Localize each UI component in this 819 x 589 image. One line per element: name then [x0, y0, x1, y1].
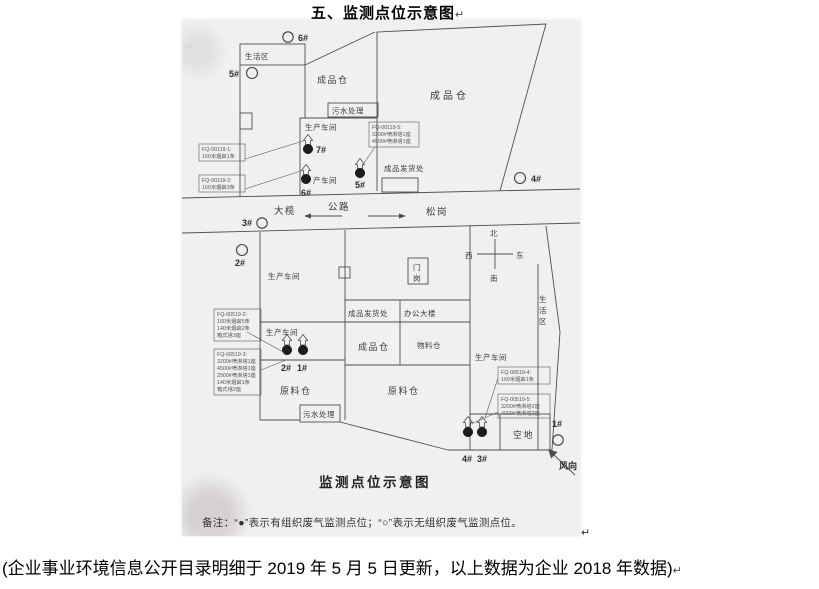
point-label: 2# [235, 258, 245, 268]
wind-label: 风向 [559, 460, 577, 471]
callout-line: 140米烟囱2条 [217, 324, 251, 332]
arrow-right-icon [399, 213, 406, 218]
arrow-left-icon [304, 213, 311, 218]
compass-north-label: 北 [490, 229, 498, 238]
lower-office-label: 办公大楼 [404, 308, 436, 318]
unorganized-point-icon [247, 68, 258, 79]
callout-line: 4500#喷淋塔1座 [372, 137, 412, 145]
callout-line: 140米烟囱1条 [217, 378, 251, 386]
point-label: 3# [242, 218, 252, 228]
point-label: 6# [298, 33, 308, 43]
unorganized-point-lower-1: 1# [552, 419, 563, 445]
callout-line: 3200#喷淋塔1座 [372, 130, 412, 138]
callout-line: FQ-00119-1: [202, 147, 232, 153]
monitoring-point-6: 产车间 6# [301, 165, 337, 199]
upper-living-area-label: 生活区 [245, 51, 269, 61]
callout-line: FQ-00519-2: [217, 312, 247, 318]
unorganized-point-5: 5# [229, 68, 258, 80]
chimney-icon [301, 165, 310, 176]
point-label: 5# [229, 69, 239, 79]
lower-workshop-e-label: 生产车间 [475, 352, 507, 362]
callout-line: 箱式塔2座 [217, 385, 242, 393]
point-label: 1# [552, 419, 562, 429]
chimney-icon [303, 135, 312, 146]
monitoring-point-5: 5# [355, 159, 365, 191]
open-land-label: 空地 [513, 429, 534, 440]
footer-text: (企业事业环境信息公开目录明细于 2019 年 5 月 5 日更新，以上数据为企… [2, 559, 673, 578]
unorganized-point-icon [515, 173, 526, 184]
callout-line: 4500#喷淋塔1座 [217, 364, 257, 372]
diagram-note: 备注：“●”表示有组织废气监测点位；“○”表示无组织废气监测点位。 [202, 516, 522, 529]
unorganized-point-icon [283, 32, 293, 42]
point-label: 5# [355, 180, 365, 190]
monitoring-point-lower-2: 2# [281, 335, 292, 374]
unorganized-point-3: 3# [242, 218, 267, 228]
living-char: 生 [539, 294, 547, 304]
callout-line: 4000#喷淋塔3座 [501, 409, 541, 417]
upper-sewage-label: 污水处理 [332, 106, 364, 116]
site-map-svg: 生活区 成品仓 成品仓 污水处理 生产车间 成品发货处 7# 产车间 6# 5#… [182, 20, 580, 536]
wind-direction: 风向 [548, 449, 577, 475]
unorganized-point-4: 4# [515, 173, 542, 185]
lower-shipping-label: 成品发货处 [348, 308, 388, 318]
living-char: 活 [539, 305, 547, 315]
lower-living-area-label: 生 活 区 [539, 294, 547, 326]
gate-char: 岗 [413, 274, 421, 283]
living-char: 区 [539, 317, 547, 326]
upper-finished-warehouse-left-label: 成品仓 [317, 74, 349, 85]
chimney-icon [477, 417, 486, 428]
lower-material-warehouse-label: 物料仓 [417, 340, 441, 350]
callout-upper-left-1: FQ-00119-1: 160米烟囱1条 [199, 141, 303, 161]
unorganized-point-lower-2: 2# [235, 245, 248, 269]
callout-line: 160米烟囱3条 [202, 183, 236, 191]
scanned-monitoring-map: 生活区 成品仓 成品仓 污水处理 生产车间 成品发货处 7# 产车间 6# 5#… [182, 20, 580, 536]
upper-finished-warehouse-right-label: 成品仓 [430, 89, 469, 102]
unorganized-point-6: 6# [283, 32, 308, 43]
point-label: 7# [316, 145, 326, 155]
organized-point-icon [303, 144, 313, 154]
callout-line: FQ-00119-5: [372, 125, 402, 131]
road-east-label: 松岗 [426, 206, 448, 218]
point-label: 2# [281, 363, 291, 373]
unorganized-point-icon [237, 245, 248, 256]
callout-upper-left-2: FQ-00119-2: 160米烟囱3条 [199, 171, 301, 192]
organized-point-icon [301, 174, 311, 184]
chimney-icon [463, 417, 472, 428]
callout-line: 箱式塔3座 [217, 331, 242, 339]
lower-workshop-w-label: 生产车间 [266, 327, 298, 337]
point-label: 6# [301, 188, 311, 198]
callout-line: FQ-00519-5: [501, 397, 531, 403]
callout-line: FQ-00119-2: [202, 178, 232, 184]
lower-sewage-label: 污水处理 [303, 409, 335, 419]
lower-workshop-nw-label: 生产车间 [268, 271, 300, 281]
paragraph-mark-icon: ↵ [581, 526, 590, 539]
callout-line: FQ-00519-3: [217, 352, 247, 358]
chimney-icon [298, 335, 307, 346]
lower-finished-warehouse-label: 成品仓 [358, 341, 390, 352]
organized-point-icon [282, 345, 292, 355]
upper-workshop2-label: 产车间 [313, 175, 337, 185]
callout-upper-mid: FQ-00119-5: 3200#喷淋塔1座 4500#喷淋塔1座 [362, 122, 419, 166]
compass-south-label: 南 [490, 273, 498, 283]
upper-workshop-label: 生产车间 [305, 122, 337, 132]
organized-point-icon [355, 168, 365, 178]
point-label: 3# [477, 454, 487, 464]
callout-line: 2500#喷淋塔1座 [217, 371, 257, 379]
callout-line: 160米烟囱5条 [217, 317, 251, 325]
lower-raw-warehouse-w-label: 原料仓 [280, 385, 312, 396]
monitoring-point-7: 7# [303, 135, 326, 156]
diagram-caption: 监测点位示意图 [319, 474, 431, 490]
road-west-label: 大榄 [274, 205, 296, 217]
lower-raw-warehouse-c-label: 原料仓 [388, 385, 420, 396]
gate-char: 门 [413, 263, 421, 272]
callout-line: 3200#喷淋塔2座 [501, 402, 541, 410]
organized-point-icon [463, 427, 473, 437]
scan-smudge [184, 43, 194, 49]
unorganized-point-icon [257, 218, 267, 228]
footer-note: (企业事业环境信息公开目录明细于 2019 年 5 月 5 日更新，以上数据为企… [2, 554, 818, 579]
point-label: 4# [462, 454, 472, 464]
compass-west-label: 西 [465, 251, 473, 260]
point-label: 1# [297, 363, 307, 373]
monitoring-point-lower-1: 1# [297, 335, 308, 374]
callout-line: 3200#喷淋塔1座 [217, 357, 257, 365]
upper-shipping-label: 成品发货处 [384, 163, 424, 173]
point-label: 4# [531, 174, 541, 184]
callout-lower-left-2: FQ-00519-3: 3200#喷淋塔1座 4500#喷淋塔1座 2500#喷… [214, 349, 286, 395]
callout-line: FQ-00519-4: [501, 370, 531, 376]
compass: 北 西 东 南 [465, 229, 524, 283]
gate-house-label: 门 岗 [413, 263, 421, 283]
monitoring-point-lower-3: 3# [477, 417, 487, 465]
unorganized-point-icon [553, 435, 563, 445]
road-label: 公路 [328, 201, 350, 213]
paragraph-mark-icon: ↵ [673, 565, 682, 577]
organized-point-icon [298, 345, 308, 355]
callout-line: 160米烟囱1条 [202, 152, 236, 160]
callout-line: 160米烟囱1条 [501, 375, 535, 383]
organized-point-icon [477, 427, 487, 437]
compass-east-label: 东 [516, 250, 524, 260]
